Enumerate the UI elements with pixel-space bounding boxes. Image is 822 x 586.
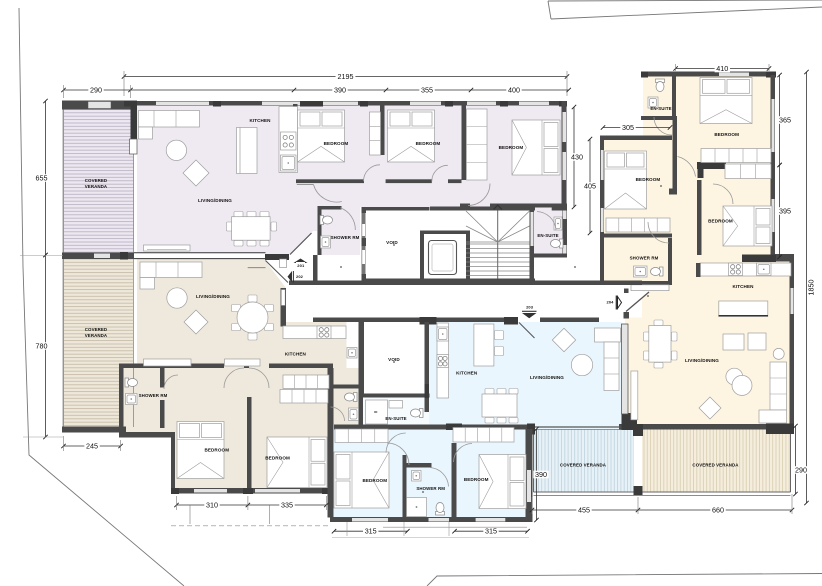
svg-text:SHOWER RM: SHOWER RM <box>416 486 445 491</box>
svg-text:655: 655 <box>36 173 48 182</box>
svg-text:BEDROOM: BEDROOM <box>265 456 290 461</box>
svg-text:BEDROOM: BEDROOM <box>499 145 524 150</box>
svg-text:LIVING/DINING: LIVING/DINING <box>198 198 232 203</box>
svg-text:SHOWER RM: SHOWER RM <box>331 235 360 240</box>
svg-text:335: 335 <box>281 500 293 509</box>
svg-text:COVERED: COVERED <box>85 178 107 183</box>
svg-text:EN-SUITE: EN-SUITE <box>650 106 671 111</box>
svg-text:202: 202 <box>296 274 304 279</box>
svg-text:LIVING/DINING: LIVING/DINING <box>196 294 230 299</box>
svg-text:VOID: VOID <box>386 240 398 245</box>
svg-text:365: 365 <box>779 115 791 124</box>
svg-text:EN-SUITE: EN-SUITE <box>385 416 406 421</box>
svg-text:KITCHEN: KITCHEN <box>456 370 478 375</box>
svg-text:290: 290 <box>795 465 807 474</box>
svg-text:201: 201 <box>297 263 305 268</box>
svg-text:BEDROOM: BEDROOM <box>324 141 349 146</box>
svg-text:660: 660 <box>712 505 724 514</box>
svg-text:BEDROOM: BEDROOM <box>714 132 739 137</box>
svg-text:KITCHEN: KITCHEN <box>249 118 271 123</box>
svg-text:BEDROOM: BEDROOM <box>362 478 387 483</box>
svg-text:390: 390 <box>334 85 346 94</box>
svg-text:VERANDA: VERANDA <box>85 333 108 338</box>
svg-text:455: 455 <box>578 505 590 514</box>
svg-text:SHOWER RM: SHOWER RM <box>139 393 168 398</box>
svg-text:COVERED VERANDA: COVERED VERANDA <box>560 463 607 468</box>
svg-text:BEDROOM: BEDROOM <box>708 219 733 224</box>
svg-text:410: 410 <box>716 64 728 73</box>
svg-text:BEDROOM: BEDROOM <box>636 177 661 182</box>
svg-text:1850: 1850 <box>806 280 815 296</box>
svg-text:310: 310 <box>206 500 218 509</box>
svg-text:VERANDA: VERANDA <box>85 184 108 189</box>
svg-text:395: 395 <box>779 206 791 215</box>
svg-text:COVERED VERANDA: COVERED VERANDA <box>692 463 739 468</box>
svg-text:390: 390 <box>535 470 547 479</box>
svg-text:KITCHEN: KITCHEN <box>732 284 754 289</box>
svg-text:2195: 2195 <box>338 72 354 81</box>
svg-text:780: 780 <box>36 341 48 350</box>
svg-text:203: 203 <box>526 305 534 310</box>
svg-text:315: 315 <box>365 527 377 536</box>
svg-text:290: 290 <box>90 85 102 94</box>
svg-text:LIVING/DINING: LIVING/DINING <box>685 358 719 363</box>
svg-text:BEDROOM: BEDROOM <box>464 477 489 482</box>
svg-text:KITCHEN: KITCHEN <box>285 352 307 357</box>
svg-text:COVERED: COVERED <box>85 327 107 332</box>
svg-text:355: 355 <box>421 85 433 94</box>
svg-text:430: 430 <box>571 152 583 161</box>
svg-text:BEDROOM: BEDROOM <box>204 448 229 453</box>
svg-text:EN-SUITE: EN-SUITE <box>537 233 558 238</box>
svg-text:LIVING/DINING: LIVING/DINING <box>530 375 564 380</box>
svg-text:315: 315 <box>485 527 497 536</box>
svg-text:BEDROOM: BEDROOM <box>416 141 441 146</box>
svg-text:SHOWER RM: SHOWER RM <box>630 256 659 261</box>
svg-text:400: 400 <box>508 85 520 94</box>
svg-text:405: 405 <box>584 181 596 190</box>
svg-text:245: 245 <box>86 441 98 450</box>
svg-text:305: 305 <box>622 123 634 132</box>
svg-text:204: 204 <box>607 300 615 305</box>
